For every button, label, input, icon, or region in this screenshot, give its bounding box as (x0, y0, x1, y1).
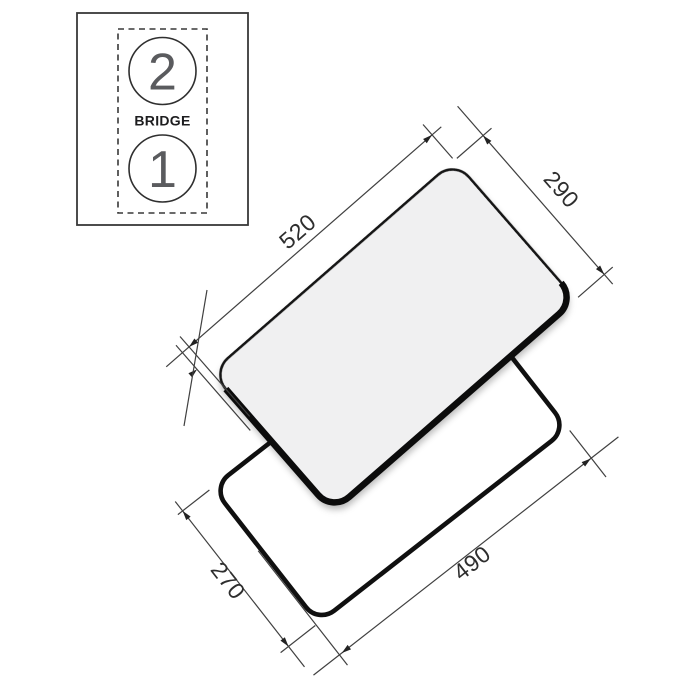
bridge-label: BRIDGE (134, 113, 190, 129)
zone-1-number: 1 (148, 141, 177, 199)
dim-270-label: 270 (206, 557, 251, 604)
hob-schematic-inset: 2 1 BRIDGE (77, 13, 248, 225)
dim-270-extension-top (178, 490, 210, 515)
dim-490-label: 490 (448, 540, 495, 585)
zone-2-number: 2 (148, 44, 177, 102)
dim-290-extension-top (457, 128, 492, 158)
dim-270-extension-bottom (281, 626, 316, 653)
dim-290-label: 290 (539, 166, 585, 213)
dim-290-extension-bottom (578, 267, 613, 297)
dimension-diagram-page: 270 490 520 (0, 0, 686, 686)
cooktop-dimension-drawing: 270 490 520 (0, 0, 686, 686)
dim-520-label: 520 (274, 208, 321, 254)
